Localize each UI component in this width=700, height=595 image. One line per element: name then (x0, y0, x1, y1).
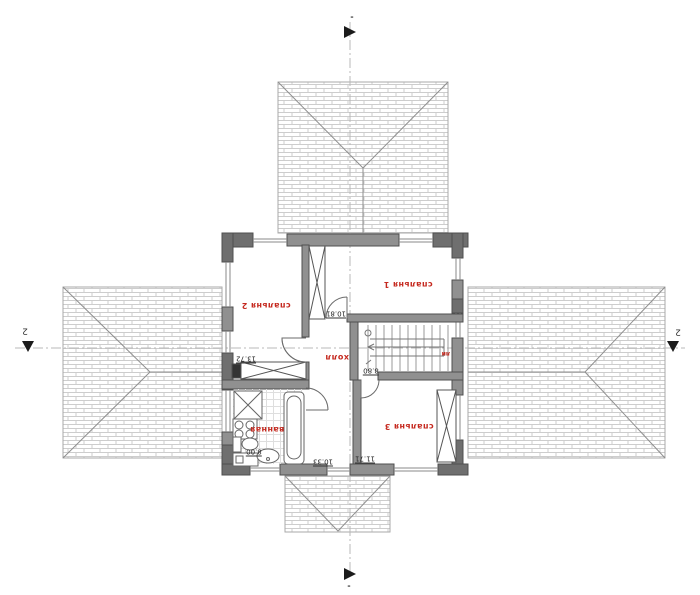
area-label-stairs: 8.80 (363, 367, 379, 376)
section-number-bottom: - (347, 582, 350, 590)
section-arrow-left (22, 341, 34, 352)
wardrobe-top (309, 246, 325, 319)
section-number-top: - (350, 13, 353, 21)
door-bedroom2-arc (282, 338, 306, 362)
section-number-right: 2 (675, 327, 681, 336)
roof-right (468, 287, 665, 458)
section-number-left: 2 (22, 326, 28, 335)
floor-plan-drawing (0, 0, 700, 595)
room-label-bedroom2: спальня 2 (241, 301, 290, 309)
room-label-bedroom3: спальня 3 (384, 422, 433, 430)
area-label-bathroom: 8.00 (246, 448, 262, 457)
room-label-stairs: ли (442, 350, 451, 356)
roof-left (63, 287, 222, 458)
floor-plan-canvas: спальня 2 спальня 1 спальня 3 ванная хол… (0, 0, 700, 595)
area-label-hall: 10.33 (313, 458, 333, 467)
corner-shower (234, 391, 262, 419)
room-label-bathroom: ванная (250, 425, 284, 433)
door-bedroom3-arc (361, 380, 379, 398)
room-label-hall: холл (325, 353, 349, 361)
area-label-bedroom1: 10.81 (326, 310, 346, 319)
bathtub (284, 392, 304, 464)
roof-top (278, 82, 448, 233)
room-label-bedroom1: спальня 1 (383, 280, 432, 288)
door-bathroom-arc (306, 388, 328, 410)
wardrobe-bedroom3 (437, 390, 456, 462)
section-arrow-right (667, 341, 679, 352)
roof-bottom (285, 476, 390, 532)
area-label-bedroom2: 13.72 (236, 355, 256, 364)
area-label-bedroom3: 11.71 (355, 455, 375, 464)
wardrobe-bedroom2 (241, 362, 306, 379)
